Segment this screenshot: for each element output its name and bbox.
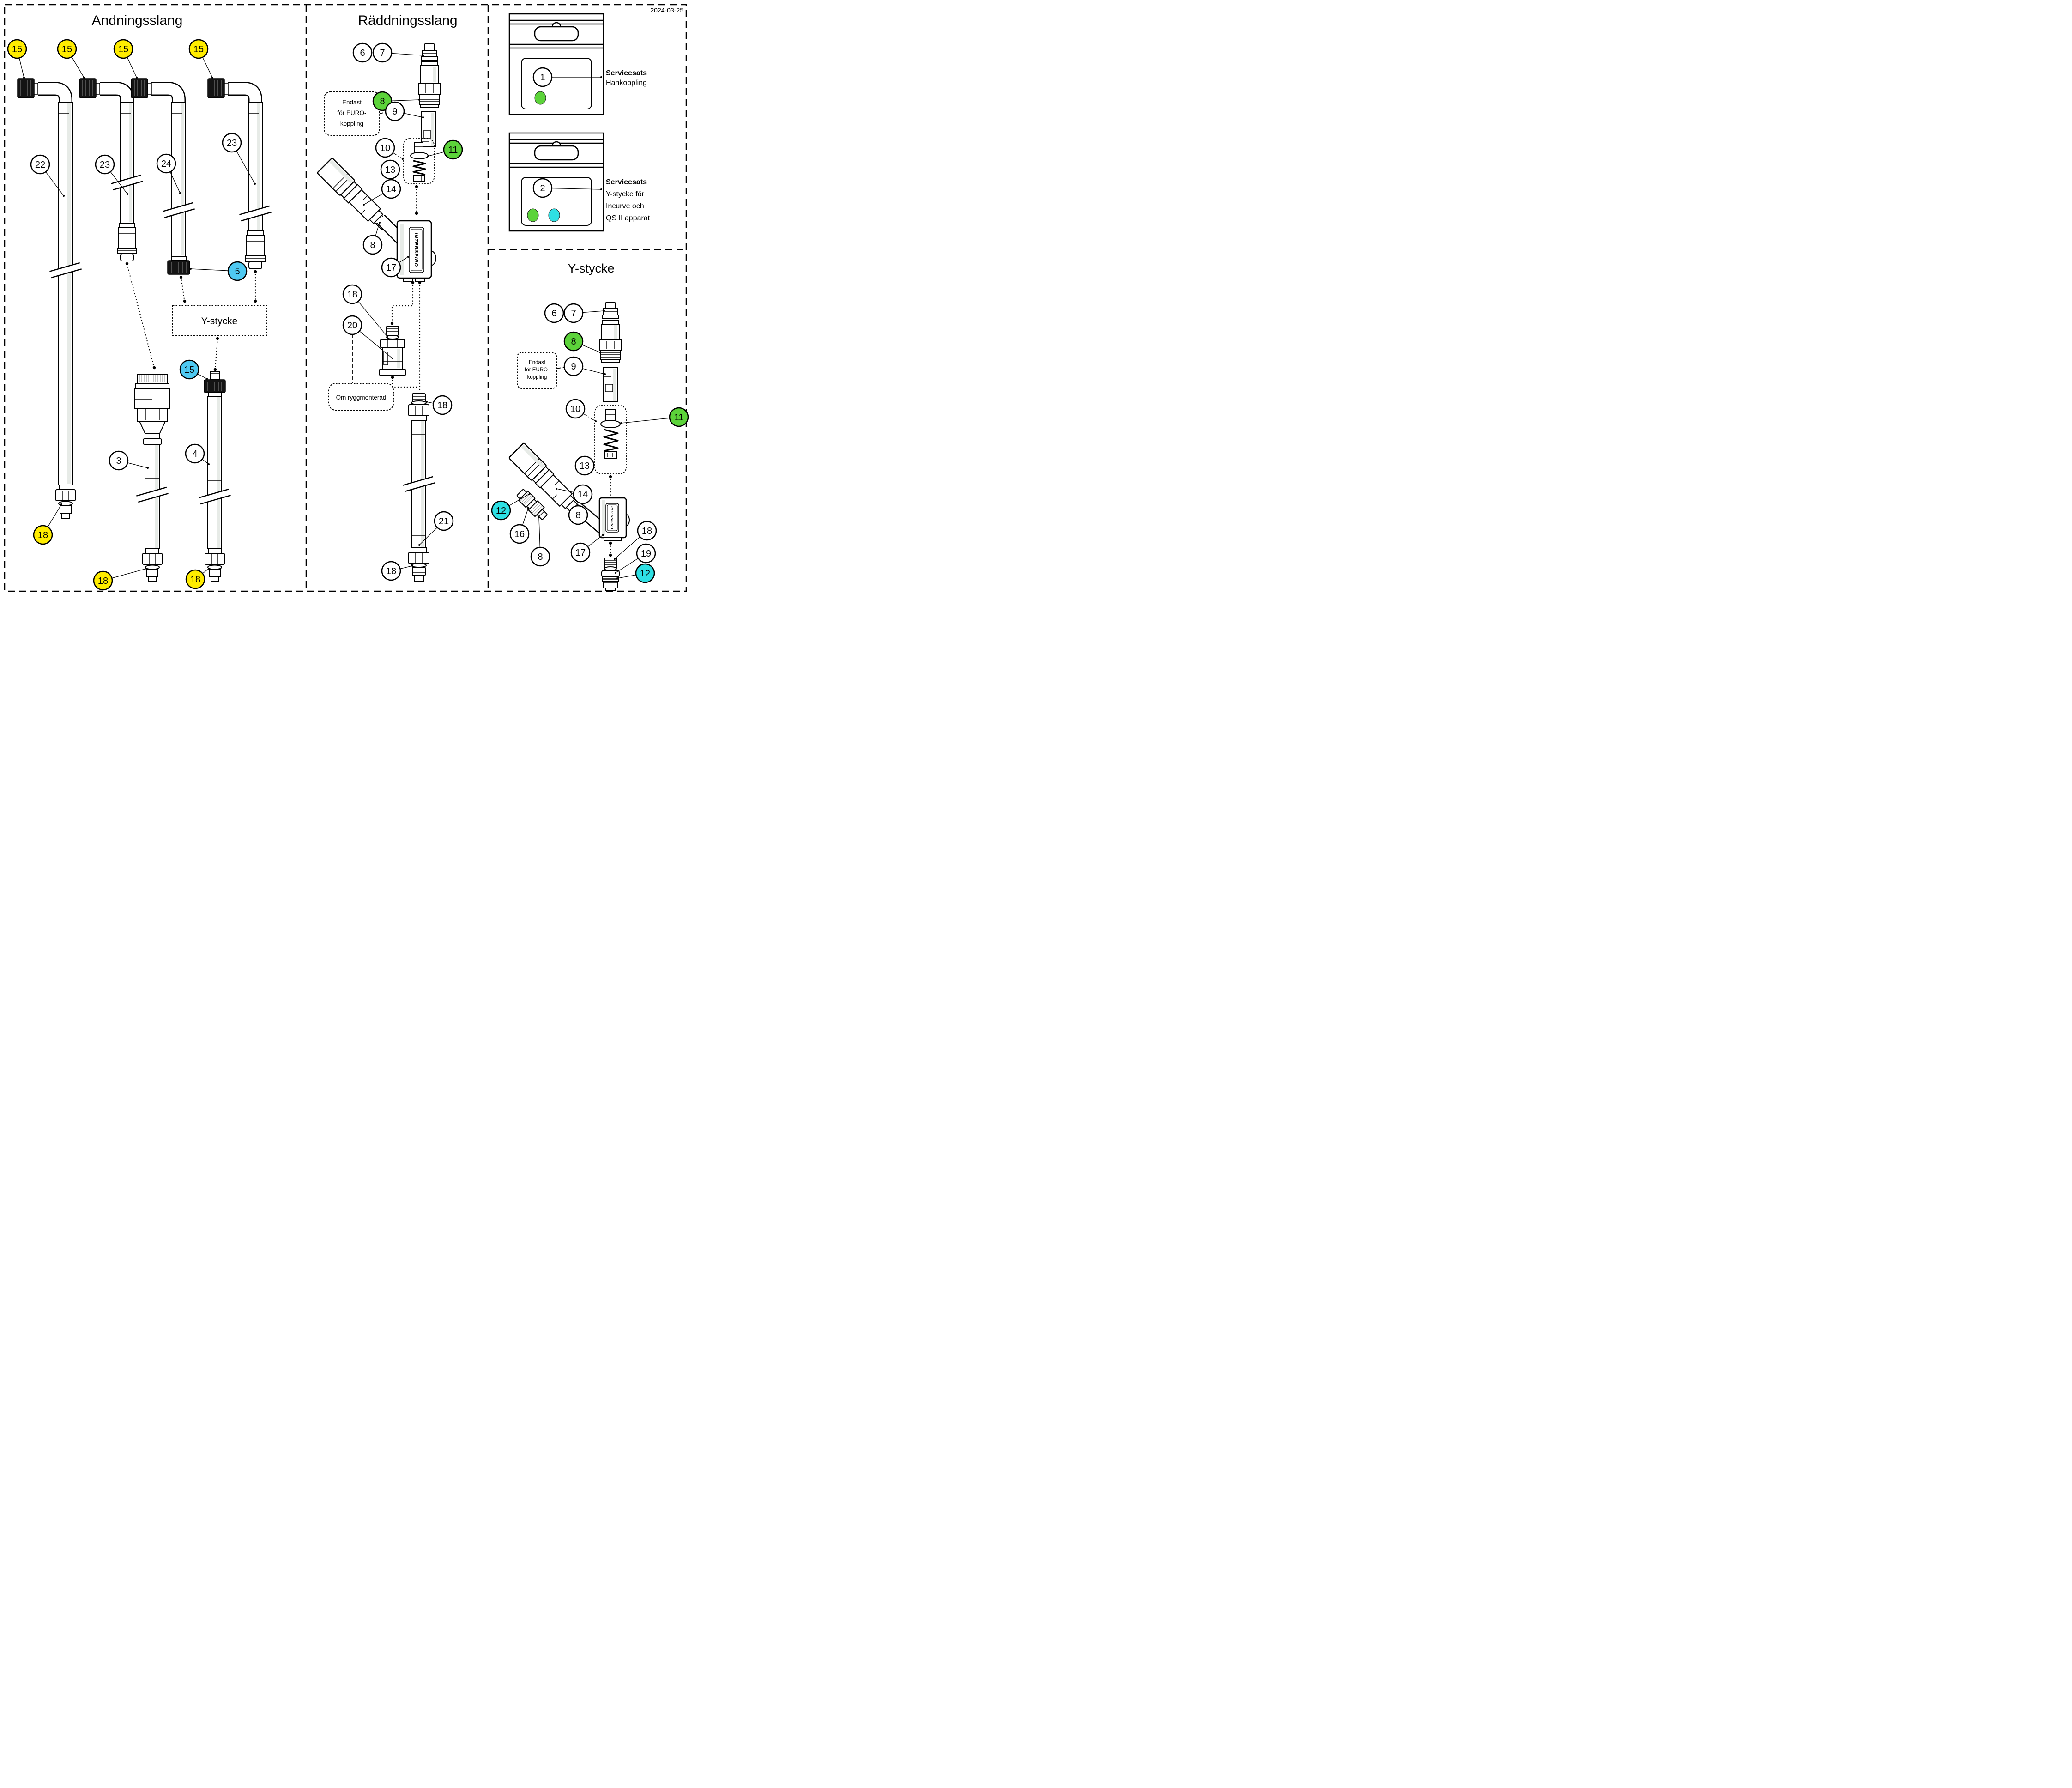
callout-target-dot [599,352,601,353]
euro-note-line3: koppling [340,120,363,127]
callout-number: 23 [227,138,237,148]
brand-logo-mid: INTERSPIRO [413,233,419,267]
callout-leader [539,517,540,547]
sealing-plug-right [515,488,550,522]
callout-13: 13 [381,160,399,179]
callout-number: 17 [386,263,396,273]
callout-leader [588,535,603,547]
callout-target-dot [392,358,393,359]
euro-note-line3: koppling [527,375,547,380]
callout-18: 18 [426,396,452,414]
diagram-svg: Andningsslang Räddningsslang Y-stycke 20… [0,0,691,596]
callout-9: 9 [386,102,424,121]
hang-hole-notch [552,142,561,146]
hose-end-thread-nut [168,256,190,274]
callout-number: 9 [392,107,397,117]
callout-leader [358,301,387,337]
callout-leader [198,374,207,379]
callout-9: 9 [564,357,606,376]
service-kit-2-package: Servicesats Y-stycke för Incurve och QS … [509,133,650,231]
panel-andningsslang: Y-stycke [18,79,272,581]
kit2-desc-2: Incurve och [606,202,644,210]
callout-number: 2 [540,183,545,194]
callout-target-dot [179,192,181,194]
callout-number: 14 [578,490,588,500]
callout-target-dot [147,467,149,469]
callout-number: 10 [570,404,580,414]
callout-leader [621,418,670,423]
callout-15: 15 [58,40,85,79]
callout-8: 8 [564,332,601,353]
callout-18: 18 [34,503,62,544]
callout-target-dot [527,507,529,509]
callout-20: 20 [343,316,393,359]
callout-13: 13 [575,456,594,475]
hang-hole-notch [552,23,561,27]
callout-leader [582,345,600,352]
callout-6: 6 [545,304,563,322]
callout-target-dot [60,503,62,505]
callout-number: 17 [575,548,586,558]
callout-number: 9 [571,362,576,372]
callout-number: 13 [385,165,395,175]
callout-number: 20 [347,321,357,331]
callout-target-dot [616,577,618,579]
kit2-title: Servicesats [606,178,647,186]
callout-18: 18 [186,568,210,588]
callout-leader [392,53,423,55]
callout-target-dot [556,488,557,490]
callout-target-dot [422,55,424,56]
callout-number: 8 [370,240,375,250]
parts-diagram-page: Andningsslang Räddningsslang Y-stycke 20… [0,0,691,596]
callout-number: 11 [448,145,458,155]
callout-target-dot [387,336,388,338]
euro-adapter-right [604,368,617,402]
callout-number: 12 [496,506,506,516]
callout-number: 10 [380,143,390,153]
hose-end-connector [117,223,137,261]
callout-number: 8 [538,552,543,562]
hose-end-connector [246,231,265,269]
callout-number: 11 [674,412,684,423]
callout-number: 15 [193,44,204,55]
brand-logo-right: INTERSPIRO [610,506,614,529]
callout-target-dot [426,401,428,403]
callout-number: 8 [380,97,385,107]
callout-4: 4 [186,444,210,465]
callout-number: 21 [439,516,449,527]
valve-insert-right [595,406,626,474]
callout-leader [203,569,209,574]
callout-15: 15 [8,40,26,79]
callout-leader [427,402,433,403]
callout-15: 15 [189,40,213,79]
hose-24 [131,79,195,274]
male-coupling-nipple-mid [418,44,441,108]
callout-leader [392,100,419,101]
male-coupling-nipple-right [599,303,622,363]
hang-hole [535,27,578,41]
callout-number: 6 [551,309,556,319]
callout-leader [48,504,61,527]
callout-number: 12 [640,569,650,579]
callout-number: 18 [437,400,447,411]
revision-date: 2024-03-25 [650,6,683,14]
callout-target-dot [407,256,409,258]
callout-number: 5 [235,267,240,277]
callout-8: 8 [569,506,587,524]
callout-leader [428,152,444,156]
callout-leader [19,58,24,78]
callout-6: 6 [353,43,372,62]
callout-target-dot [418,544,420,546]
callout-target-dot [614,558,616,560]
callout-number: 15 [62,44,72,55]
euro-note-line2: för EURO- [337,109,366,116]
callout-target-dot [620,422,622,424]
panel-title-raddningsslang: Räddningsslang [358,13,457,28]
callout-18: 18 [382,562,413,580]
ystycke-reference-box: Y-stycke [173,305,266,335]
callout-number: 1 [540,73,545,83]
callout-number: 23 [100,160,110,170]
callout-14: 14 [363,180,400,206]
callout-target-dot [208,568,210,570]
callout-number: 15 [184,365,194,375]
callout-leader [522,508,528,525]
callout-number: 16 [514,529,525,539]
callout-number: 13 [580,461,590,471]
callout-target-dot [595,420,597,422]
callout-10: 10 [376,139,404,160]
callout-leader [127,57,137,78]
callout-target-dot [145,568,147,570]
callout-7: 7 [564,304,605,322]
callout-target-dot [411,565,413,567]
callout-number: 18 [386,566,396,576]
hose-end-nipple [56,485,75,518]
callout-target-dot [427,155,429,157]
callout-target-dot [136,77,138,79]
callout-target-dot [83,77,85,79]
callout-17: 17 [571,534,604,562]
service-kits: Servicesats Hankoppling Servicesats Y-st… [509,14,650,231]
callout-target-dot [206,378,208,380]
callout-18: 18 [94,568,147,590]
callout-target-dot [363,204,365,206]
callout-target-dot [418,99,420,101]
callout-number: 6 [360,48,365,58]
callout-target-dot [211,77,213,79]
callout-target-dot [402,158,404,160]
callout-7: 7 [373,43,424,62]
callout-number: 7 [571,309,576,319]
callout-target-dot [422,116,424,118]
euro-note-line1: Endast [529,360,546,365]
callout-number: 18 [38,530,48,540]
callout-leader [191,269,228,271]
callout-16: 16 [510,507,529,543]
kit1-title: Servicesats [606,69,647,77]
lower-plug-right [602,558,619,591]
hose-4-assembly [199,371,230,581]
euro-note-line2: för EURO- [525,367,550,373]
hang-hole [535,146,578,160]
callout-number: 22 [35,160,45,170]
callout-number: 8 [571,337,576,347]
panel-raddningsslang: Endast för EURO- koppling [317,44,441,581]
callout-number: 24 [161,159,171,169]
kit1-desc: Hankoppling [606,79,647,87]
callout-target-dot [63,195,65,197]
euro-note-box-right: Endast för EURO- koppling [517,352,564,388]
callout-leader [582,369,605,374]
ystycke-box-label: Y-stycke [201,316,238,327]
kit2-desc-3: QS II apparat [606,214,650,222]
callout-number: 4 [192,449,197,459]
elbow-nut [18,79,34,98]
callout-leader [616,558,638,573]
callout-target-dot [615,572,616,574]
callout-target-dot [604,373,606,375]
callout-12: 12 [616,564,654,582]
callout-number: 14 [386,184,396,194]
callout-number: 15 [118,44,128,55]
callout-target-dot [254,183,256,185]
callout-8: 8 [531,516,550,566]
panel-title-ystycke: Y-stycke [568,261,614,275]
panel-title-andningsslang: Andningsslang [92,13,183,28]
callout-target-dot [538,516,540,518]
callout-target-dot [529,493,531,495]
callout-number: 19 [641,549,651,559]
callout-3: 3 [109,451,149,470]
kit1-green-dot [535,91,546,104]
callout-number: 18 [347,290,357,300]
hose-23-b [208,79,272,269]
callout-leader [400,566,412,569]
callout-target-dot [127,193,128,195]
coupling-3-assembly [135,374,170,581]
callout-target-dot [23,77,25,79]
callout-leader [617,575,636,578]
callout-number: 18 [642,526,652,536]
callout-leader [583,311,604,312]
ryggmonterad-label: Om ryggmonterad [336,394,387,401]
callout-number: 3 [116,456,121,466]
callout-target-dot [600,76,602,78]
kit2-green-dot [527,209,538,222]
callout-10: 10 [566,400,597,422]
callout-target-dot [190,268,192,270]
callout-leader [112,569,146,578]
callout-5: 5 [190,262,247,280]
callout-number: 7 [380,48,385,58]
kit2-desc-1: Y-stycke för [606,190,645,198]
callout-target-dot [600,188,602,190]
callout-leader [393,153,403,159]
hose-22 [18,79,82,518]
kit2-cyan-dot [549,209,560,222]
service-kit-1-package: Servicesats Hankoppling [509,14,647,115]
callout-target-dot [603,310,605,312]
callout-leader [203,57,212,78]
callout-11: 11 [620,408,688,426]
callout-leader [404,113,423,117]
callout-leader [583,413,596,421]
callout-target-dot [208,463,210,465]
callout-number: 18 [190,575,200,585]
callout-leader [72,57,84,78]
callout-target-dot [602,534,604,536]
rescue-hose-21 [403,394,435,581]
callout-15: 15 [180,360,208,380]
callout-number: 15 [12,44,22,55]
callout-number: 18 [98,576,108,586]
callout-number: 8 [575,510,580,521]
callout-target-dot [379,222,381,224]
callout-15: 15 [114,40,138,79]
euro-note-line1: Endast [342,99,362,106]
